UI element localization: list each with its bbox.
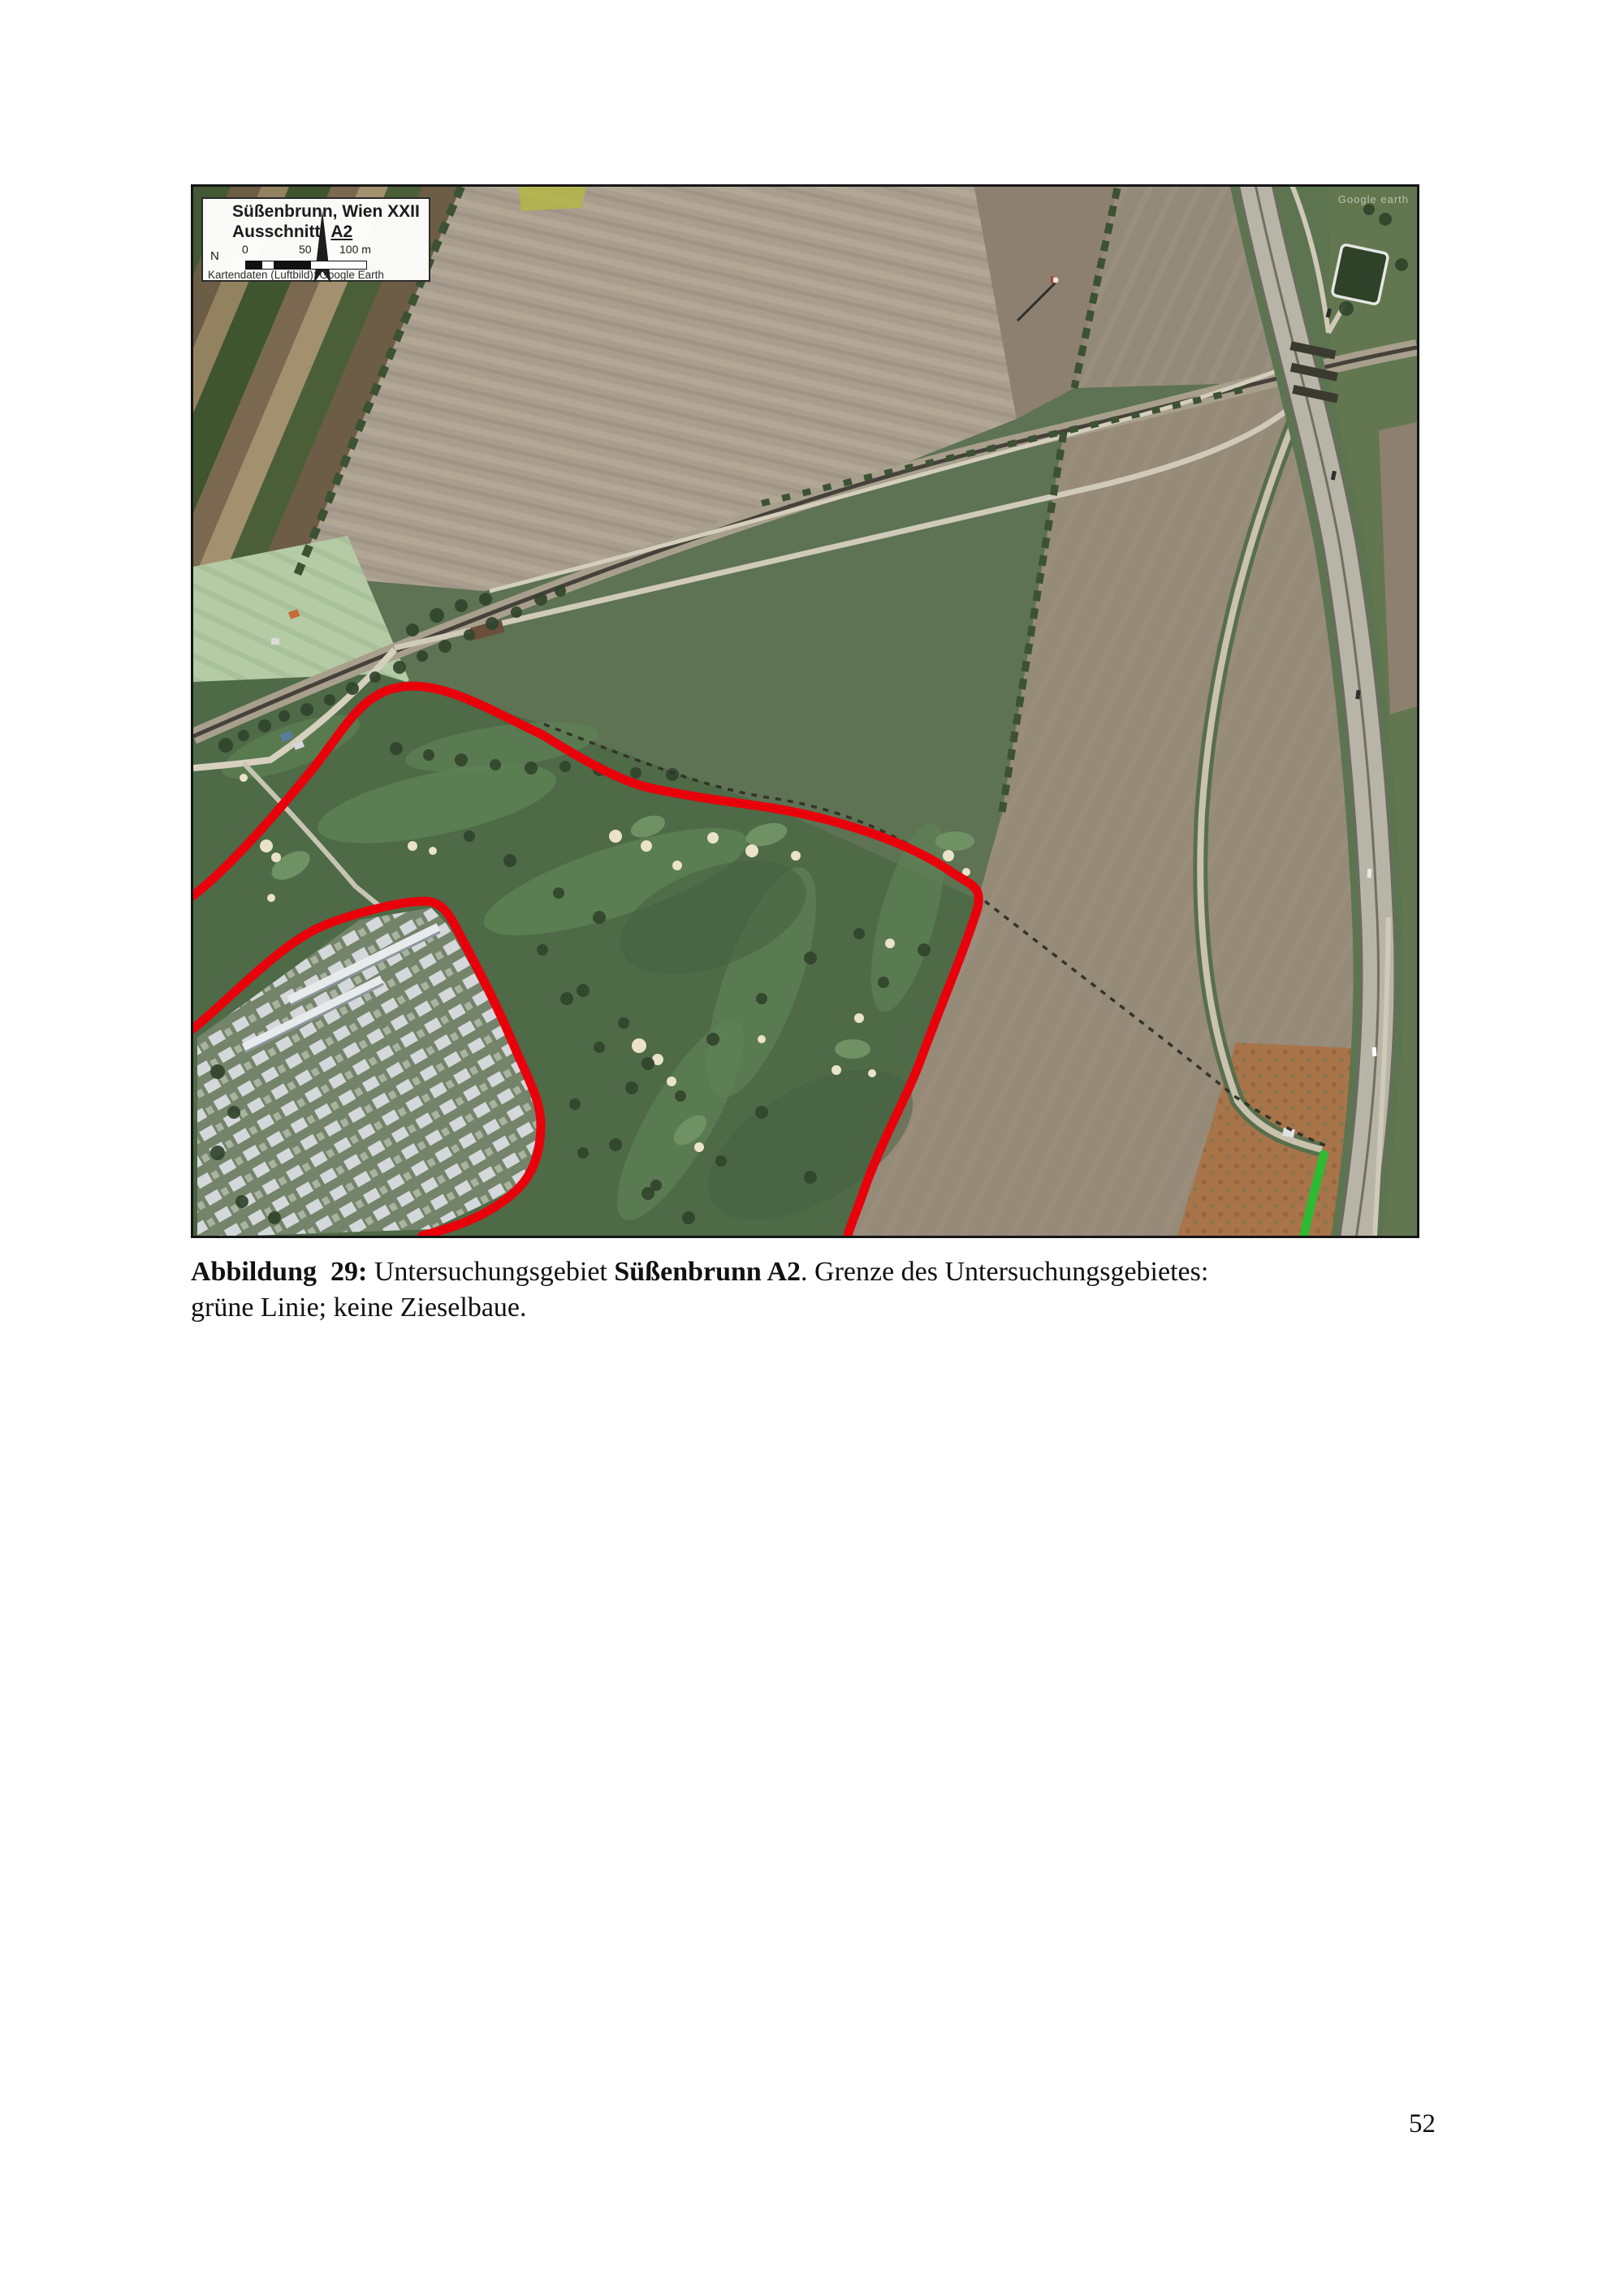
satellite-image (193, 187, 1417, 1236)
legend-subtitle-label: Ausschnitt: (232, 222, 326, 241)
page-number: 52 (1364, 2109, 1436, 2139)
figure-caption: Abbildung 29: Untersuchungsgebiet Süßenb… (191, 1254, 1419, 1326)
caption-text-2: . Grenze des Untersuchungsgebietes: (801, 1257, 1208, 1287)
legend-source-credit: Kartendaten (Luftbild): Google Earth (208, 269, 384, 281)
map-legend: N Süßenbrunn, Wien XXII Ausschnitt: A2 0… (201, 197, 430, 282)
google-earth-watermark: Google earth (1338, 193, 1409, 205)
caption-line-1: Abbildung 29: Untersuchungsgebiet Süßenb… (191, 1254, 1419, 1290)
scale-tick-100: 100 m (339, 243, 371, 256)
caption-site-name: Süßenbrunn A2 (614, 1257, 801, 1287)
legend-title: Süßenbrunn, Wien XXII (232, 202, 420, 222)
caption-line-2: grüne Linie; keine Zieselbaue. (191, 1290, 1419, 1326)
legend-subtitle-value: A2 (330, 222, 352, 241)
yellow-crop-patch (518, 187, 586, 211)
legend-subtitle: Ausschnitt: A2 (232, 222, 352, 242)
document-page: N Süßenbrunn, Wien XXII Ausschnitt: A2 0… (0, 0, 1624, 2296)
retention-pond (1332, 244, 1389, 305)
scale-tick-50: 50 (299, 243, 312, 256)
caption-label: Abbildung 29: (191, 1257, 367, 1287)
scale-tick-0: 0 (242, 243, 248, 256)
north-label: N (210, 249, 219, 263)
caption-text-1: Untersuchungsgebiet (367, 1257, 614, 1287)
aerial-map-figure: N Süßenbrunn, Wien XXII Ausschnitt: A2 0… (191, 184, 1419, 1238)
